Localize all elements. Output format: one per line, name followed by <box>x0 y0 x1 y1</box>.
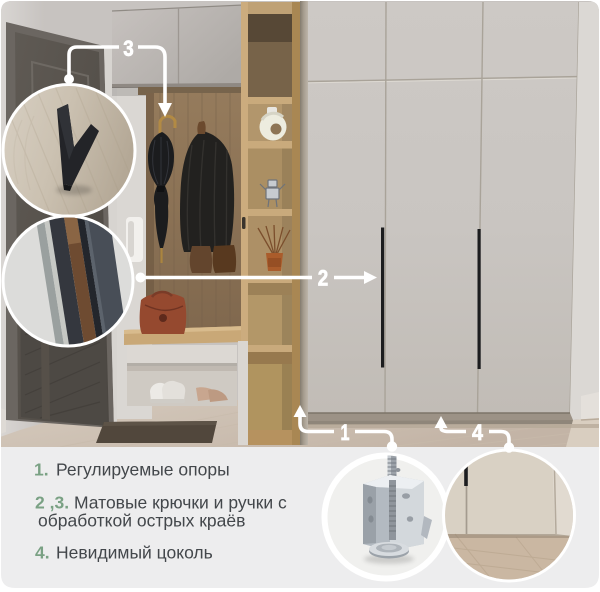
svg-text:1.: 1. <box>34 460 49 480</box>
svg-text:4.: 4. <box>35 543 50 563</box>
svg-text:Матовые крючки и ручки с: Матовые крючки и ручки с <box>74 493 287 513</box>
svg-text:Невидимый цоколь: Невидимый цоколь <box>56 543 213 563</box>
svg-text:1: 1 <box>341 420 350 445</box>
svg-text:2: 2 <box>318 266 329 291</box>
svg-text:обработкой острых краёв: обработкой острых краёв <box>38 511 245 531</box>
svg-text:Регулируемые опоры: Регулируемые опоры <box>56 460 230 480</box>
svg-text:2 ,3.: 2 ,3. <box>35 493 69 513</box>
svg-text:4: 4 <box>472 420 484 445</box>
svg-text:3: 3 <box>123 36 134 61</box>
